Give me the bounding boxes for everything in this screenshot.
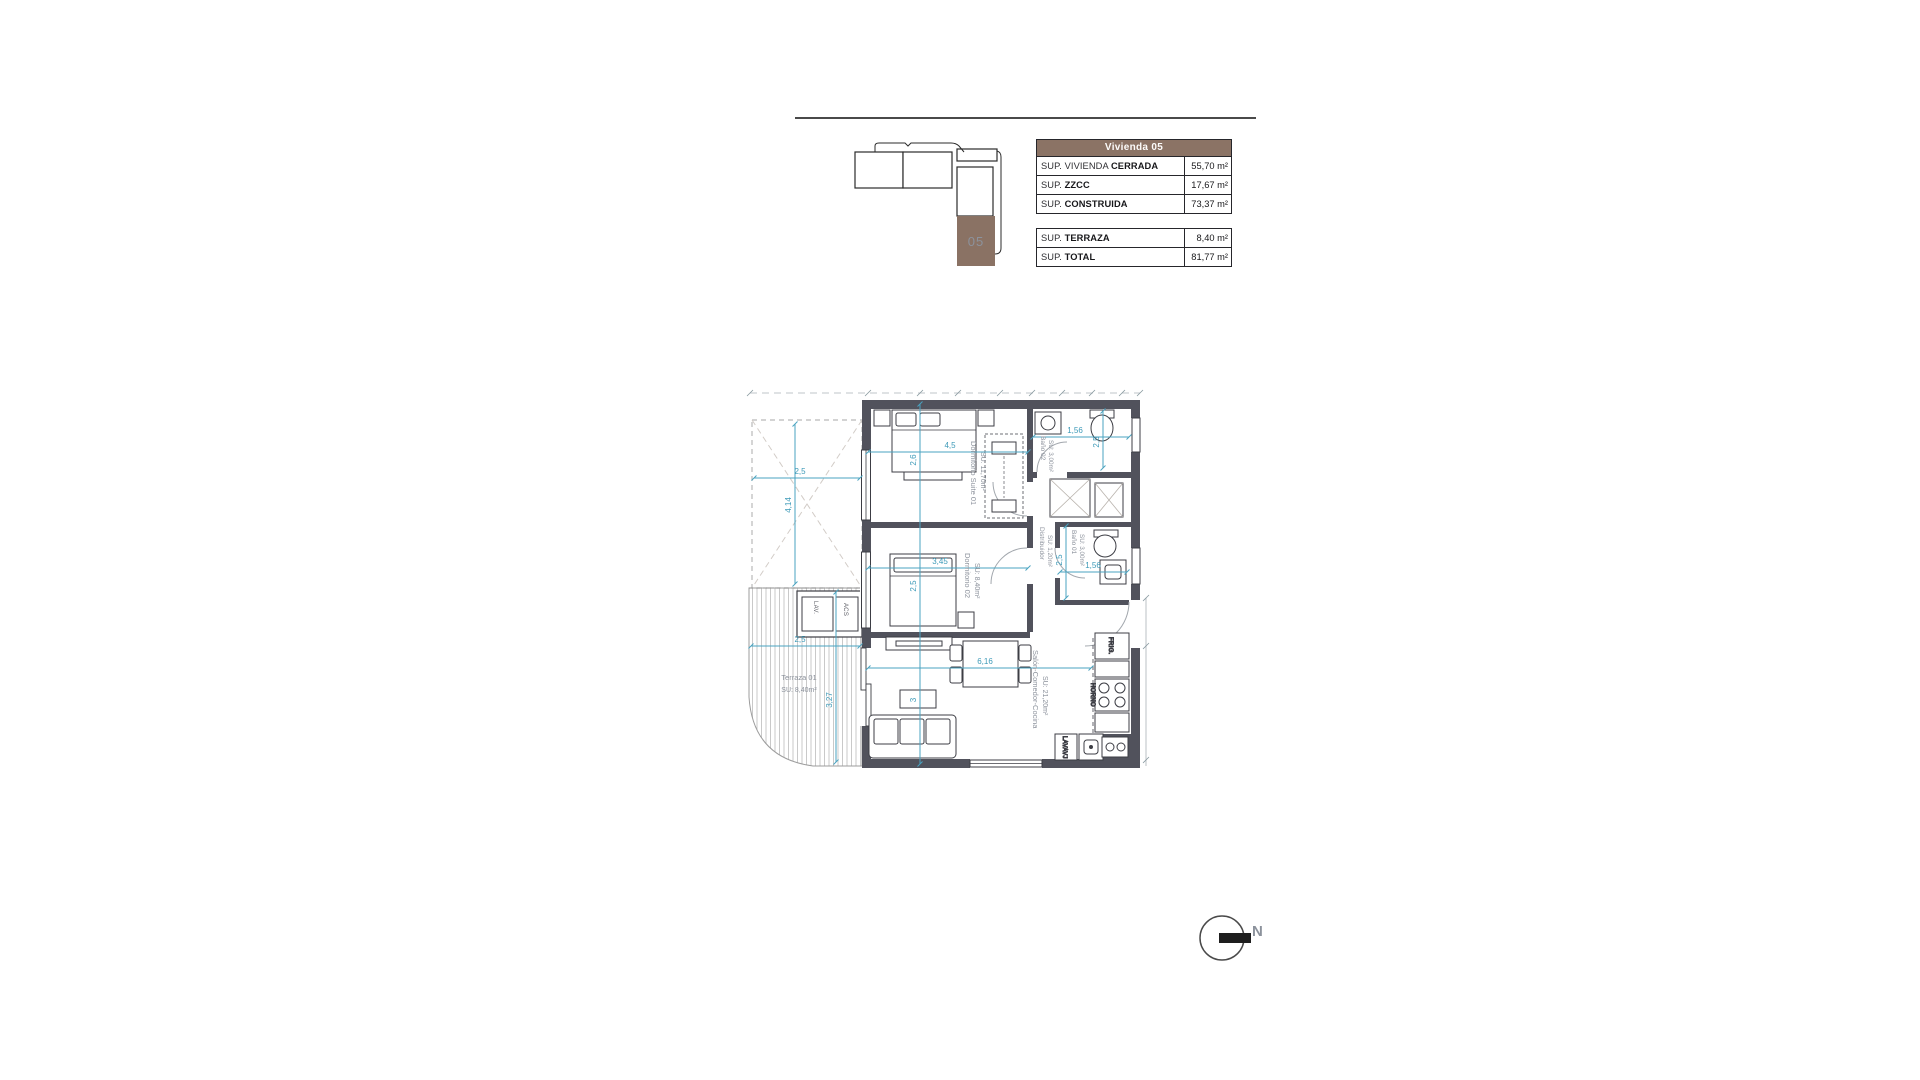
counter — [1095, 713, 1129, 732]
hob — [1095, 679, 1129, 711]
dim-bedroom2-height: 2,5 — [909, 580, 918, 592]
key-plan-unit-label: 05 — [968, 234, 984, 249]
bed-bench — [904, 472, 962, 480]
room-area-terrace: SU: 8,40m² — [781, 687, 817, 694]
room-area-bath1: SU: 3,00m² — [1078, 534, 1085, 566]
dim-terrace-height: 3,27 — [825, 692, 834, 708]
dim-bath1-height: 2,5 — [1055, 554, 1064, 566]
pergola-area — [752, 420, 862, 588]
suite-furniture — [874, 410, 1023, 518]
room-area-bedroom2: SU: 8,40m² — [973, 563, 980, 599]
acs-label: ACS — [842, 603, 848, 616]
dim-bath2-height: 2,5 — [1092, 436, 1101, 448]
chair — [1019, 667, 1031, 683]
bath2-sink — [1035, 412, 1061, 434]
hall-closets — [1050, 479, 1123, 517]
room-label-bath1: Baño 01 — [1070, 530, 1077, 555]
dim-bedroom2-width: 3,45 — [932, 557, 948, 566]
dim-bath2-width: 1,56 — [1067, 426, 1083, 435]
sofa-cushion — [874, 719, 898, 744]
fridge-label: FRIG. — [1107, 637, 1113, 655]
room-area-bath2: SU: 3,00m² — [1047, 440, 1054, 472]
key-plan: 05 — [855, 143, 1001, 266]
counter — [1095, 661, 1129, 677]
room-area-hall: SU: 1,20m² — [1046, 535, 1053, 567]
nightstand — [958, 612, 974, 628]
bedroom2-door-arc — [991, 548, 1027, 584]
living-furniture — [869, 637, 1031, 758]
room-label-living: Salón-Comedor-Cocina — [1031, 650, 1040, 729]
chair — [950, 667, 962, 683]
nightstand — [874, 410, 890, 426]
apartment-plan: LAV. ACS — [747, 390, 1149, 770]
oven-label: HORNO — [1089, 683, 1095, 707]
key-plan-outline — [875, 143, 964, 152]
laundry-unit: LAV. ACS — [797, 591, 862, 637]
room-area-living: SU: 21,20m² — [1041, 676, 1048, 716]
room-area-suite: SU: 11,70m² — [979, 452, 986, 491]
dim-bath1-width: 1,56 — [1085, 561, 1101, 570]
dim-suite-width: 4,5 — [944, 441, 956, 450]
chair — [950, 645, 962, 661]
dim-living-height: 3 — [909, 697, 918, 702]
pillow — [896, 413, 916, 426]
dim-pergola-width: 2,5 — [794, 467, 806, 476]
nightstand — [978, 410, 994, 426]
key-plan-block — [855, 152, 903, 188]
north-arrow: N — [1200, 916, 1263, 960]
dim-pergola-height: 4,14 — [784, 497, 793, 513]
room-label-terrace: Terraza 01 — [781, 673, 816, 682]
chair — [1019, 645, 1031, 661]
washer-label: LAV. — [812, 601, 818, 614]
sofa-cushion — [926, 719, 950, 744]
dim-terrace-width: 2,5 — [794, 635, 806, 644]
coffee-table — [900, 690, 936, 708]
dim-living-width: 6,16 — [977, 657, 993, 666]
dim-suite-height: 2,6 — [909, 454, 918, 466]
bath1-wc — [1094, 535, 1116, 557]
room-label-suite: Dormitorio Suite 01 — [969, 441, 978, 505]
room-label-bedroom2: Dormitorio 02 — [963, 553, 972, 598]
kitchen: FRIG. HORNO LAVAVJ — [1055, 633, 1129, 760]
plan-drawing: 05 LAV. ACS — [0, 0, 1920, 1080]
floor-plan-sheet: Vivienda 05 SUP. VIVIENDA CERRADA 55,70 … — [0, 0, 1920, 1080]
key-plan-block — [903, 152, 952, 188]
room-label-bath2: Baño 02 — [1039, 436, 1046, 461]
room-label-hall: Distribuidor — [1038, 527, 1045, 561]
section-rule-line — [795, 117, 1256, 119]
pillow — [920, 413, 940, 426]
dishwasher-label: LAVAVJ — [1061, 736, 1067, 759]
north-label: N — [1252, 923, 1263, 940]
key-plan-block — [957, 167, 993, 216]
key-plan-outline — [995, 151, 1001, 254]
north-arrow-bar — [1219, 933, 1251, 943]
